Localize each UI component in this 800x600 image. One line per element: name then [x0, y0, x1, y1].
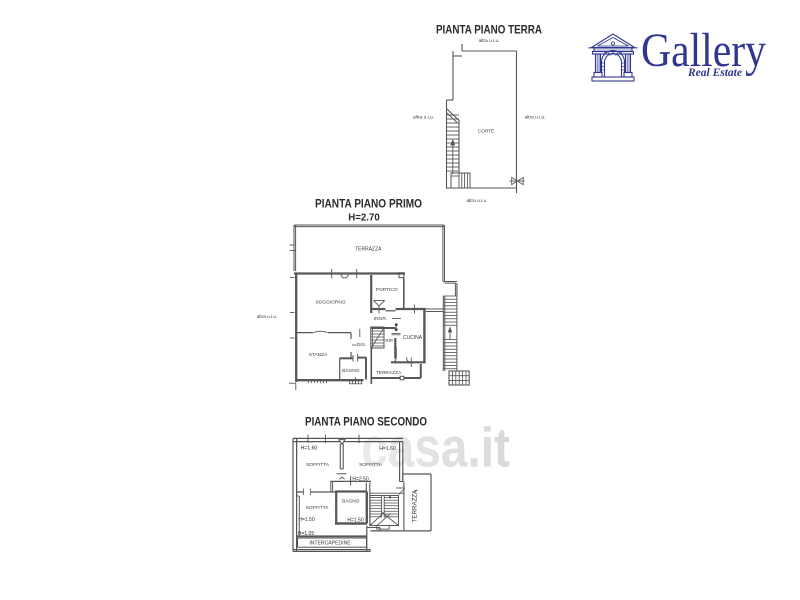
- svg-text:altra u.i.u.: altra u.i.u.: [257, 314, 278, 319]
- svg-text:TERRAZZA: TERRAZZA: [376, 370, 402, 376]
- svg-text:H=1.60: H=1.60: [301, 445, 318, 451]
- svg-text:PIANTA PIANO PRIMO: PIANTA PIANO PRIMO: [315, 196, 422, 210]
- svg-text:PIANTA PIANO SECONDO: PIANTA PIANO SECONDO: [305, 414, 427, 428]
- svg-text:CORTE: CORTE: [478, 129, 495, 135]
- svg-text:SOGGIORNO: SOGGIORNO: [315, 299, 345, 305]
- svg-text:altra u.i.u.: altra u.i.u.: [524, 115, 545, 121]
- svg-text:SOFFITTA: SOFFITTA: [306, 462, 330, 468]
- svg-text:altra u.i.u.: altra u.i.u.: [478, 38, 499, 44]
- svg-text:BAGNO: BAGNO: [342, 368, 360, 374]
- svg-text:CUCINA: CUCINA: [403, 335, 423, 341]
- svg-text:PORTICO: PORTICO: [376, 287, 398, 293]
- svg-text:STANZA: STANZA: [309, 352, 328, 358]
- svg-text:RIP.: RIP.: [385, 338, 393, 343]
- svg-text:DIS.: DIS.: [357, 342, 366, 348]
- svg-text:INGR.: INGR.: [374, 316, 387, 322]
- svg-text:Real Estate: Real Estate: [687, 67, 742, 79]
- svg-text:TERRAZZA: TERRAZZA: [355, 247, 382, 253]
- svg-text:TERRAZZA: TERRAZZA: [412, 489, 419, 523]
- svg-text:altra u.i.u.: altra u.i.u.: [466, 198, 487, 204]
- svg-text:H=1.60: H=1.60: [379, 446, 396, 452]
- svg-text:SOFFITTA: SOFFITTA: [359, 462, 383, 468]
- svg-text:H=1.50: H=1.50: [298, 517, 314, 523]
- svg-text:PIANTA PIANO TERRA: PIANTA PIANO TERRA: [436, 23, 542, 37]
- svg-text:H=2.70: H=2.70: [348, 212, 380, 224]
- svg-text:SOFFITTA: SOFFITTA: [306, 505, 330, 511]
- svg-text:BAGNO: BAGNO: [342, 498, 360, 504]
- svg-text:altra u.i.u.: altra u.i.u.: [413, 115, 434, 121]
- svg-text:INTERCAPEDINE: INTERCAPEDINE: [309, 541, 351, 547]
